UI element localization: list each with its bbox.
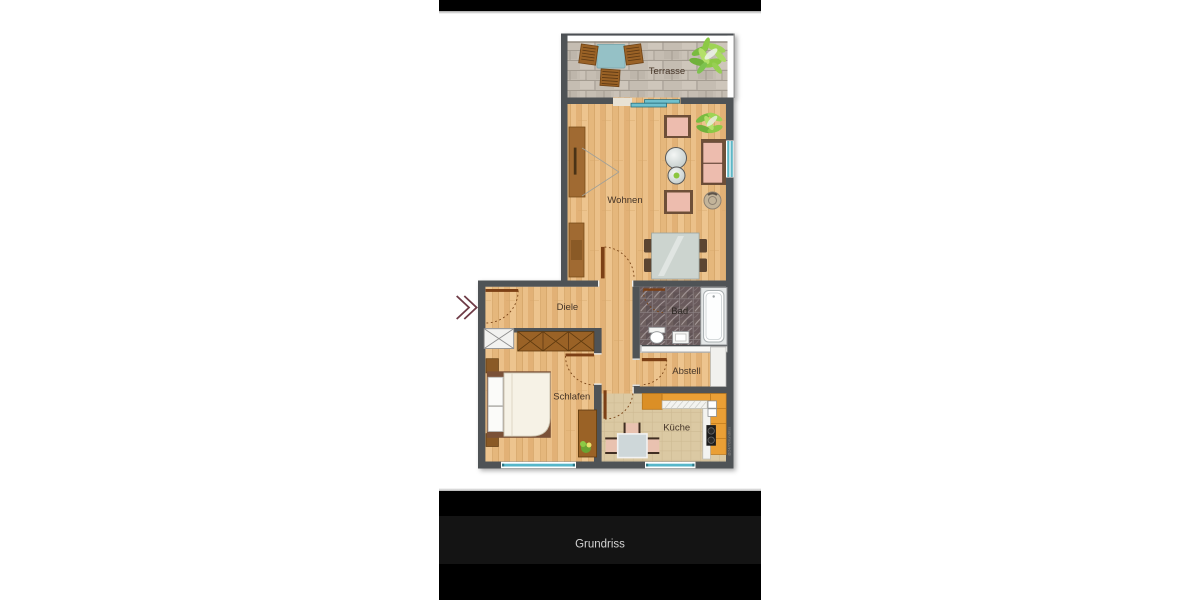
svg-text:Bad: Bad [671,306,688,317]
svg-text:Grundriss: Grundriss [575,539,625,551]
svg-text:Schlafen: Schlafen [553,392,590,403]
svg-text:Abstell: Abstell [672,366,701,377]
svg-text:Wohnen: Wohnen [607,195,642,206]
svg-text:Terrasse: Terrasse [649,66,685,77]
svg-text:Diele: Diele [557,302,579,313]
svg-text:Küche: Küche [663,423,690,434]
svg-text:@24/7Grundriss: @24/7Grundriss [727,427,732,456]
